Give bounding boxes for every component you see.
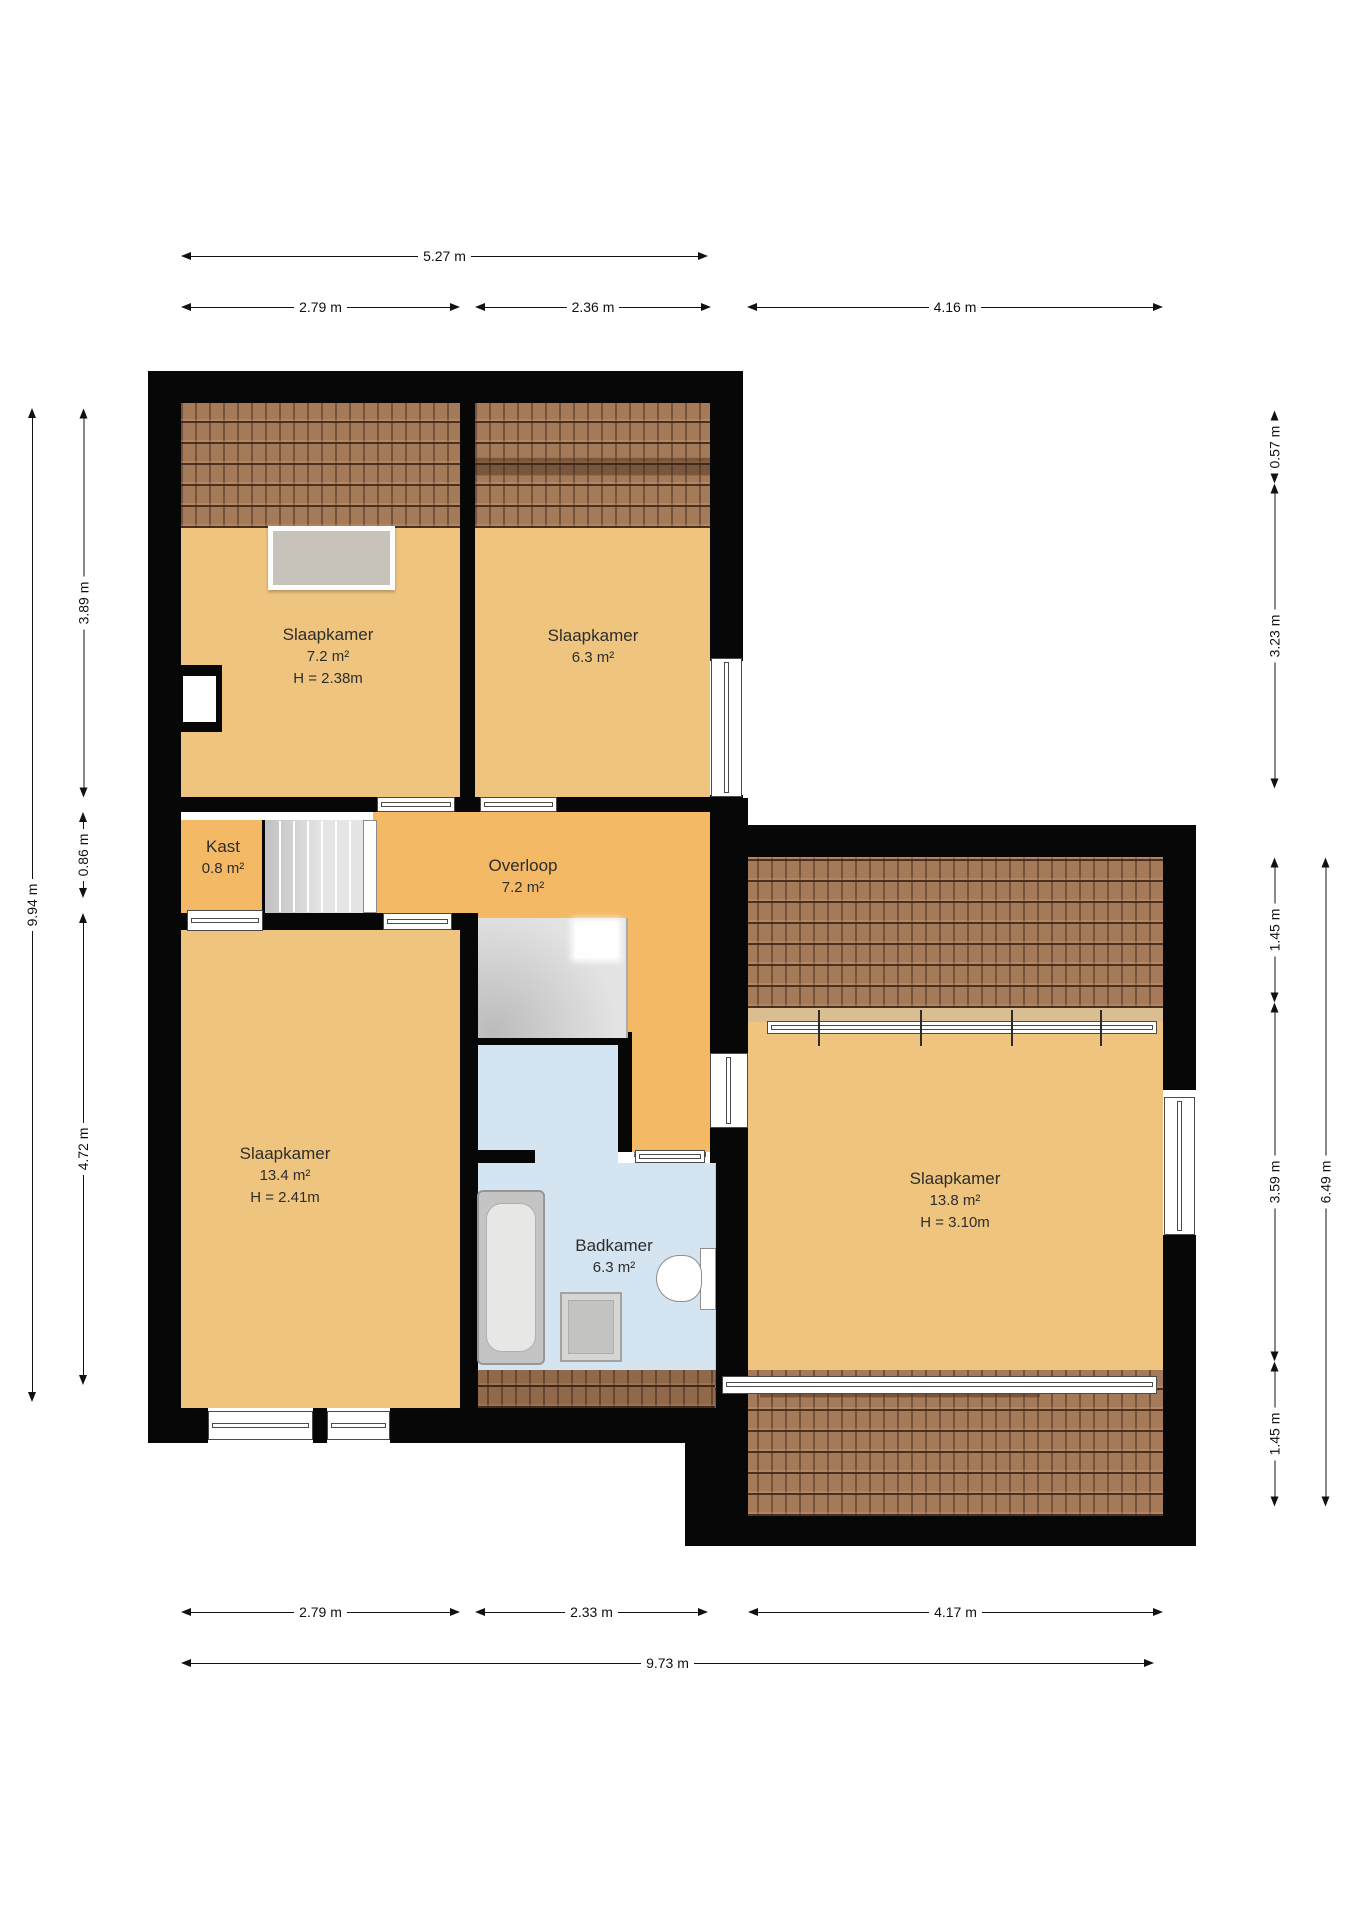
dim-086-left-label: 0.86 m (75, 829, 91, 882)
dim-145b-right-arrowhead-start (1270, 1496, 1278, 1506)
window-tick-2 (1011, 1010, 1013, 1046)
dim-233-bottom-label: 2.33 m (565, 1604, 618, 1620)
dim-527-label: 5.27 m (418, 248, 471, 264)
window-slaapkamer3-south-a (208, 1411, 313, 1440)
dim-527-arrowhead-end (698, 252, 708, 260)
dim-279-bottom-line2 (347, 1612, 450, 1613)
room-label-slaapkamer-1-line1: 7.2 m² (283, 646, 374, 668)
roof-right-top (715, 857, 1163, 1008)
room-label-slaapkamer-1-line2: H = 2.38m (283, 668, 374, 690)
dim-527: 5.27 m (181, 248, 708, 264)
dim-416-top-line2 (981, 307, 1153, 308)
window-roofband-bottom (722, 1376, 1157, 1394)
washer-inner (568, 1300, 614, 1354)
dim-145a-right-line (1274, 956, 1275, 992)
dim-057-right-label: 0.57 m (1266, 420, 1282, 473)
dim-994-left-arrowhead-start (28, 1392, 36, 1402)
dim-416-top-arrowhead-end (1153, 303, 1163, 311)
dim-472-left: 4.72 m (75, 913, 91, 1385)
wall-1 (148, 371, 181, 1443)
dim-994-left-label: 9.94 m (24, 879, 40, 932)
wall-17 (710, 825, 748, 1053)
dim-086-left-arrowhead-start (79, 888, 87, 898)
dim-416-top-line (757, 307, 929, 308)
dim-236-top-arrowhead-start (475, 303, 485, 311)
dim-417-bottom-label: 4.17 m (929, 1604, 982, 1620)
wall-7 (557, 797, 713, 812)
dim-323-right-arrowhead-start (1270, 778, 1278, 788)
dim-472-left-line2 (83, 923, 84, 1123)
dim-359-right: 3.59 m (1266, 1002, 1282, 1361)
bathtub-inner (486, 1203, 536, 1352)
door-slaapkamer-4-glass (726, 1057, 731, 1124)
dim-649-right-line2 (1325, 867, 1326, 1155)
kast-door-band (187, 910, 263, 931)
dim-279-bottom-arrowhead-end (450, 1608, 460, 1616)
window-slaapkamer4-topband (767, 1021, 1157, 1034)
stair-tread-5 (349, 821, 351, 912)
dim-472-left-label: 4.72 m (75, 1123, 91, 1176)
door-badkamer (635, 1150, 705, 1163)
stair-tread-1 (293, 821, 295, 912)
dim-649-right: 6.49 m (1317, 857, 1333, 1506)
wall-21 (148, 1408, 208, 1443)
window-slaapkamer4-east-glass (1177, 1101, 1182, 1231)
dim-233-bottom-arrowhead-end (698, 1608, 708, 1616)
window-slaapkamer4-topband-glass (771, 1025, 1153, 1030)
dim-649-right-arrowhead-start (1321, 1496, 1329, 1506)
room-label-overloop-line0: Overloop (489, 855, 558, 877)
dim-359-right-line (1274, 1208, 1275, 1351)
dim-145a-right-label: 1.45 m (1266, 903, 1282, 956)
room-label-badkamer: Badkamer6.3 m² (575, 1235, 652, 1279)
dim-279-bottom-label: 2.79 m (294, 1604, 347, 1620)
door-slaapkamer-2 (480, 797, 557, 812)
dim-472-left-arrowhead-start (79, 1375, 87, 1385)
dim-973-bottom-line (191, 1663, 641, 1664)
dim-323-right-line (1274, 662, 1275, 778)
window-tick-0 (818, 1010, 820, 1046)
dim-416-top-label: 4.16 m (929, 299, 982, 315)
dim-086-left-line (83, 881, 84, 888)
wall-26 (1163, 1235, 1196, 1546)
dim-086-left-arrowhead-end (79, 812, 87, 822)
wall-8 (148, 913, 187, 930)
dim-417-bottom-line2 (982, 1612, 1153, 1613)
dim-279-bottom-arrowhead-start (181, 1608, 191, 1616)
wall-19 (716, 1163, 748, 1408)
dim-994-left-line2 (32, 418, 33, 879)
dim-145b-right-arrowhead-end (1270, 1361, 1278, 1371)
room-label-slaapkamer-3: Slaapkamer13.4 m²H = 2.41m (240, 1143, 331, 1209)
dim-649-right-arrowhead-end (1321, 857, 1329, 867)
wall-14 (618, 1045, 632, 1152)
room-label-badkamer-line0: Badkamer (575, 1235, 652, 1257)
dim-279-bottom: 2.79 m (181, 1604, 460, 1620)
stairs-rail-2 (626, 918, 628, 1038)
wall-2 (710, 371, 743, 661)
wall-16 (710, 798, 748, 825)
stair-tread-2 (307, 821, 309, 912)
dim-233-bottom-line (485, 1612, 565, 1613)
room-label-slaapkamer-4-line2: H = 3.10m (910, 1212, 1001, 1234)
dim-994-left-arrowhead-end (28, 408, 36, 418)
door-slaapkamer-3-glass (387, 919, 448, 924)
dim-236-top-label: 2.36 m (567, 299, 620, 315)
dim-649-right-label: 6.49 m (1317, 1155, 1333, 1208)
floor-overloop-east (628, 918, 710, 1152)
dim-145a-right-arrowhead-start (1270, 992, 1278, 1002)
dim-973-bottom-arrowhead-end (1144, 1659, 1154, 1667)
dim-389-left: 3.89 m (75, 408, 91, 797)
room-label-slaapkamer-4-line0: Slaapkamer (910, 1168, 1001, 1190)
dim-417-bottom-arrowhead-end (1153, 1608, 1163, 1616)
floor-shower (478, 1045, 618, 1150)
dim-145a-right-line2 (1274, 867, 1275, 903)
room-label-slaapkamer-1: Slaapkamer7.2 m²H = 2.38m (283, 624, 374, 690)
dim-472-left-arrowhead-end (79, 913, 87, 923)
dim-359-right-arrowhead-start (1270, 1351, 1278, 1361)
dim-279-top-line2 (347, 307, 450, 308)
room-label-slaapkamer-4-line1: 13.8 m² (910, 1190, 1001, 1212)
dim-417-bottom: 4.17 m (748, 1604, 1163, 1620)
wall-9 (263, 913, 383, 930)
dim-145b-right-label: 1.45 m (1266, 1407, 1282, 1460)
door-slaapkamer-1-glass (381, 802, 451, 807)
window-slaapkamer3-south-b (327, 1411, 390, 1440)
dim-417-bottom-line (758, 1612, 929, 1613)
window-slaapkamer3-south-b-glass (331, 1423, 386, 1428)
dim-359-right-label: 3.59 m (1266, 1155, 1282, 1208)
door-slaapkamer-3 (383, 913, 452, 930)
dim-233-bottom-arrowhead-start (475, 1608, 485, 1616)
wall-0 (148, 371, 743, 403)
dim-389-left-line (83, 629, 84, 787)
floor-bath-link (535, 1150, 618, 1163)
dim-279-top: 2.79 m (181, 299, 460, 315)
window-tick-3 (1100, 1010, 1102, 1046)
stairs-railing (363, 820, 377, 913)
dim-236-top-line2 (619, 307, 701, 308)
wall-15 (478, 1150, 535, 1163)
dim-994-left-line (32, 931, 33, 1392)
wall-niche-inner (183, 676, 216, 722)
room-label-overloop-line1: 7.2 m² (489, 877, 558, 899)
dim-994-left: 9.94 m (24, 408, 40, 1402)
wall-27 (685, 1516, 1196, 1546)
roof-bath-strip (473, 1370, 716, 1408)
wall-24 (743, 825, 1196, 857)
dim-359-right-line2 (1274, 1012, 1275, 1155)
floor-tan-strip (715, 1008, 1163, 1022)
room-label-overloop: Overloop7.2 m² (489, 855, 558, 899)
toilet-tank (700, 1248, 716, 1310)
wall-22 (313, 1408, 327, 1443)
dim-472-left-line (83, 1175, 84, 1375)
dim-279-top-arrowhead-start (181, 303, 191, 311)
dim-323-right-arrowhead-end (1270, 483, 1278, 493)
wall-6 (455, 797, 480, 812)
dim-416-top: 4.16 m (747, 299, 1163, 315)
dim-973-bottom: 9.73 m (181, 1655, 1154, 1671)
room-label-slaapkamer-2-line0: Slaapkamer (548, 625, 639, 647)
dim-145b-right-line2 (1274, 1371, 1275, 1407)
door-slaapkamer-4 (710, 1053, 748, 1128)
room-label-slaapkamer-4: Slaapkamer13.8 m²H = 3.10m (910, 1168, 1001, 1234)
stair-tread-4 (335, 821, 337, 912)
floorplan-canvas: Slaapkamer7.2 m²H = 2.38mSlaapkamer6.3 m… (0, 0, 1358, 1920)
dim-359-right-arrowhead-end (1270, 1002, 1278, 1012)
window-slaapkamer2-east-glass (724, 662, 729, 793)
wall-11 (460, 913, 478, 1410)
wall-5 (181, 797, 377, 812)
room-label-slaapkamer-3-line2: H = 2.41m (240, 1187, 331, 1209)
room-label-slaapkamer-2-line1: 6.3 m² (548, 647, 639, 669)
dim-973-bottom-line2 (694, 1663, 1144, 1664)
wall-18 (710, 1128, 748, 1163)
wall-4 (460, 371, 475, 812)
dim-145a-right-arrowhead-end (1270, 857, 1278, 867)
dim-057-right: 0.57 m (1266, 426, 1282, 483)
door-badkamer-glass (639, 1154, 701, 1159)
dim-233-bottom: 2.33 m (475, 1604, 708, 1620)
dim-389-left-arrowhead-start (79, 787, 87, 797)
stair-tread-3 (321, 821, 323, 912)
window-tick-1 (920, 1010, 922, 1046)
dim-236-top: 2.36 m (475, 299, 711, 315)
dim-086-left-line2 (83, 822, 84, 829)
dim-057-right-arrowhead-start (1270, 473, 1278, 483)
room-label-slaapkamer-1-line0: Slaapkamer (283, 624, 374, 646)
door-slaapkamer-2-glass (484, 802, 553, 807)
dim-145b-right: 1.45 m (1266, 1361, 1282, 1506)
dim-233-bottom-line2 (618, 1612, 698, 1613)
wall-25 (1163, 825, 1196, 1090)
dormer-window (268, 526, 395, 590)
room-label-slaapkamer-3-line0: Slaapkamer (240, 1143, 331, 1165)
wall-23 (390, 1408, 716, 1443)
toilet-bowl (656, 1255, 702, 1302)
dim-389-left-arrowhead-end (79, 408, 87, 418)
dim-527-line2 (471, 256, 698, 257)
dim-527-arrowhead-start (181, 252, 191, 260)
room-label-badkamer-line1: 6.3 m² (575, 1257, 652, 1279)
dim-279-top-line (191, 307, 294, 308)
dim-279-top-arrowhead-end (450, 303, 460, 311)
room-label-slaapkamer-2: Slaapkamer6.3 m² (548, 625, 639, 669)
window-slaapkamer3-south-a-glass (212, 1423, 309, 1428)
dim-973-bottom-label: 9.73 m (641, 1655, 694, 1671)
room-label-kast: Kast0.8 m² (202, 836, 245, 880)
dim-323-right-line2 (1274, 493, 1275, 609)
dim-145a-right: 1.45 m (1266, 857, 1282, 1002)
dim-236-top-arrowhead-end (701, 303, 711, 311)
room-label-kast-line0: Kast (202, 836, 245, 858)
dim-323-right-label: 3.23 m (1266, 609, 1282, 662)
dim-323-right: 3.23 m (1266, 483, 1282, 788)
window-roofband-bottom-glass (726, 1382, 1153, 1387)
stair-tread-0 (279, 821, 281, 912)
dim-527-line (191, 256, 418, 257)
roof-shade-top (473, 457, 712, 476)
dim-649-right-line (1325, 1208, 1326, 1496)
dim-086-left: 0.86 m (75, 812, 91, 898)
kast-door-band-glass (191, 918, 259, 923)
dim-389-left-line2 (83, 418, 84, 576)
room-label-kast-line1: 0.8 m² (202, 858, 245, 880)
room-label-slaapkamer-3-line1: 13.4 m² (240, 1165, 331, 1187)
dim-279-top-label: 2.79 m (294, 299, 347, 315)
stairs-landing (575, 922, 618, 958)
dim-973-bottom-arrowhead-start (181, 1659, 191, 1667)
dim-057-right-arrowhead-end (1270, 410, 1278, 420)
dim-236-top-line (485, 307, 567, 308)
door-slaapkamer-1 (377, 797, 455, 812)
dim-417-bottom-arrowhead-start (748, 1608, 758, 1616)
dim-145b-right-line (1274, 1460, 1275, 1496)
dim-416-top-arrowhead-start (747, 303, 757, 311)
dim-279-bottom-line (191, 1612, 294, 1613)
window-slaapkamer2-east (711, 658, 742, 797)
window-slaapkamer4-east (1164, 1097, 1195, 1235)
dim-389-left-label: 3.89 m (75, 576, 91, 629)
